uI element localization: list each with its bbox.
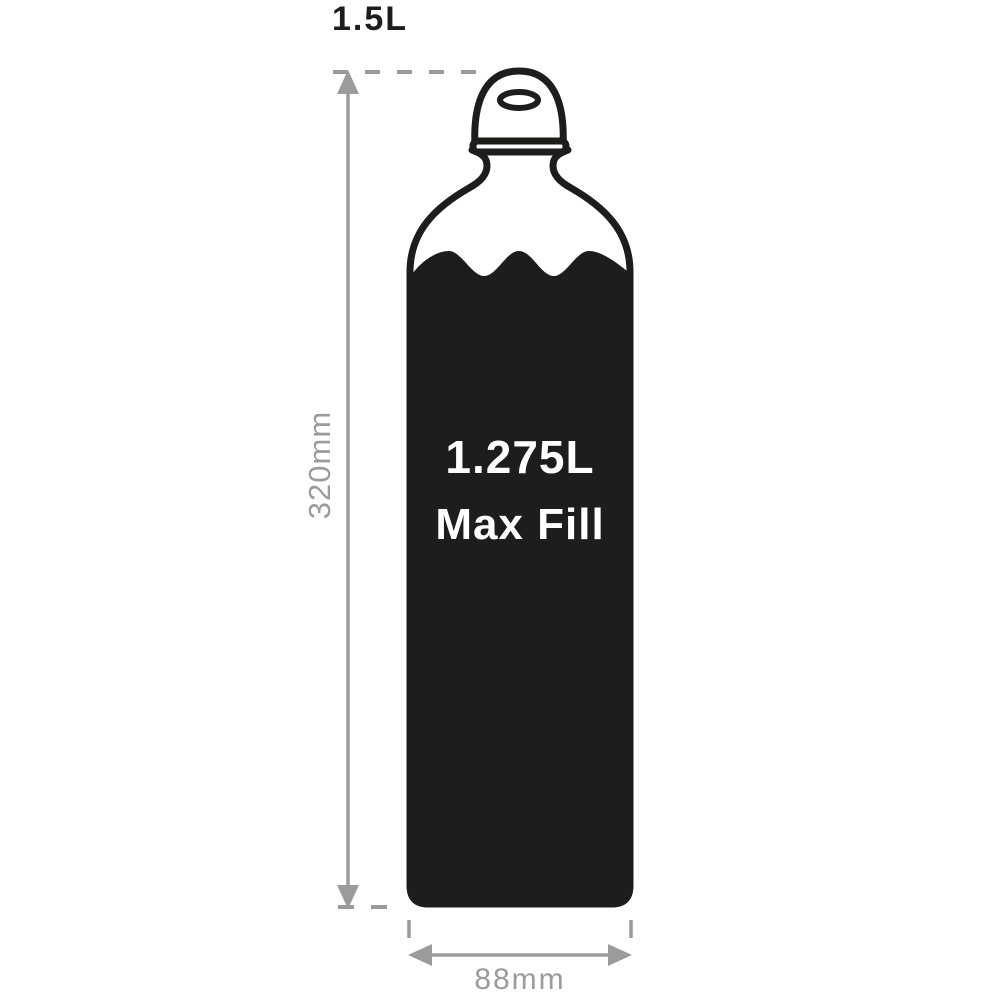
arrow-right-icon [608,944,632,966]
bottle-dimension-diagram: 1.5L 320mm 1.275L Max Fill 88mm [0,0,1000,1000]
max-fill-volume-label: 1.275L [395,430,645,484]
max-fill-caption-label: Max Fill [395,500,645,550]
bottle [410,71,630,904]
water-fill [413,251,627,901]
cap-flange [473,141,566,152]
cap-handle-hole [500,92,538,108]
width-dimension-label: 88mm [430,963,610,997]
capacity-label: 1.5L [290,0,450,39]
arrow-left-icon [408,944,432,966]
height-dimension-label: 320mm [302,385,338,545]
